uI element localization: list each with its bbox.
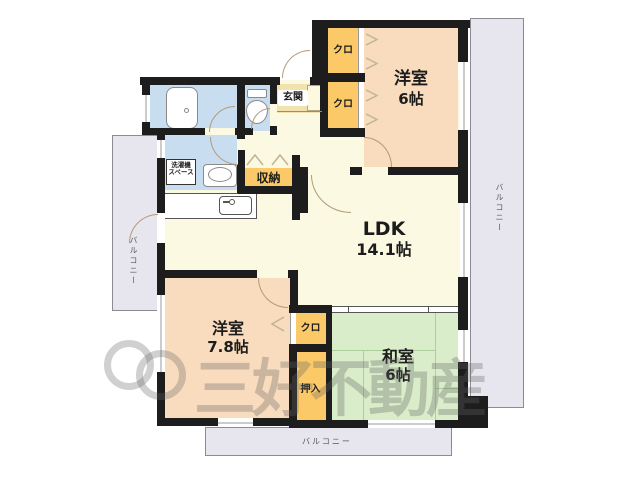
balcony-door-opening [157,213,165,243]
wall [458,277,468,330]
genkan-step-line [277,111,322,112]
window [142,95,150,122]
room-label-western6: 洋室 6帖 [365,70,457,108]
toilet-tank-icon [247,89,267,98]
watermark-logo-icon [104,340,154,390]
oshiire-label: 押入 [292,384,329,396]
bathtub-drain-icon [184,108,189,113]
window [460,62,468,130]
wall [320,73,365,82]
wall [142,77,150,95]
wall [150,128,205,135]
wall [388,167,458,175]
room-size: 14.1帖 [356,240,411,259]
balcony-left-label: バルコニー [128,236,139,286]
wall [157,158,165,213]
closet-bifold-icon [364,112,379,127]
sliding-door-tick [348,306,349,313]
room-name: 洋室 [394,69,428,89]
room-label-japanese6: 和室 6帖 [352,348,444,385]
room-label-western78: 洋室 7.8帖 [178,320,278,357]
room-size: 7.8帖 [207,338,249,356]
wall [435,420,488,428]
storage-bifold-icon [245,153,265,167]
closet-bifold-icon [364,56,379,71]
faucet-icon [229,199,235,205]
closet1-label: クロ [328,45,358,57]
wall [157,270,257,278]
tatami-line [435,388,458,389]
wall [238,150,245,194]
laundry-space-label: 洗濯機 スペース [166,162,196,177]
wall [157,278,165,295]
sliding-door [332,306,458,313]
wall [458,130,468,203]
room-size: 6帖 [385,366,410,384]
window [368,420,435,428]
window [157,295,165,372]
storage-bifold-icon [270,153,290,167]
balcony-bottom-label: バルコニー [302,436,352,447]
room-name: 洋室 [212,319,244,338]
window [157,140,165,158]
genkan-label: 玄関 [278,92,308,104]
room-name: 和室 [382,347,414,366]
wall [140,77,280,85]
room-label-ldk: LDK 14.1帖 [330,219,438,259]
window [460,330,468,362]
kitchen-sink-icon [219,196,252,215]
window [218,419,253,427]
wall [312,20,470,28]
wall [350,167,362,175]
storage-label: 収納 [245,172,292,186]
entrance-door-arc [282,50,310,78]
window [460,203,468,277]
closet3-label: クロ [295,323,326,335]
wall [326,313,332,420]
wall [157,418,218,426]
faucet-spout-icon [223,201,229,203]
wall [240,186,300,194]
floorplan-canvas: バルコニー バルコニー バルコニー [0,0,640,480]
washbasin-bowl-icon [208,167,232,182]
wall [292,155,300,220]
sliding-door-tick [428,306,429,313]
wall [243,128,253,135]
wall [320,128,365,137]
wall [300,167,308,213]
room-size: 6帖 [398,90,423,108]
balcony-right-label: バルコニー [494,183,505,233]
wall [270,84,277,104]
wall [458,20,468,62]
wall [289,420,368,428]
wall [142,122,150,135]
laundry-line2: スペース [168,168,193,176]
closet2-label: クロ [328,99,358,111]
wall [270,126,277,135]
wall [253,418,294,426]
room-name: LDK [363,218,406,240]
wall [289,305,332,313]
closet-bifold-icon [364,32,379,47]
bathtub-icon [166,87,198,129]
